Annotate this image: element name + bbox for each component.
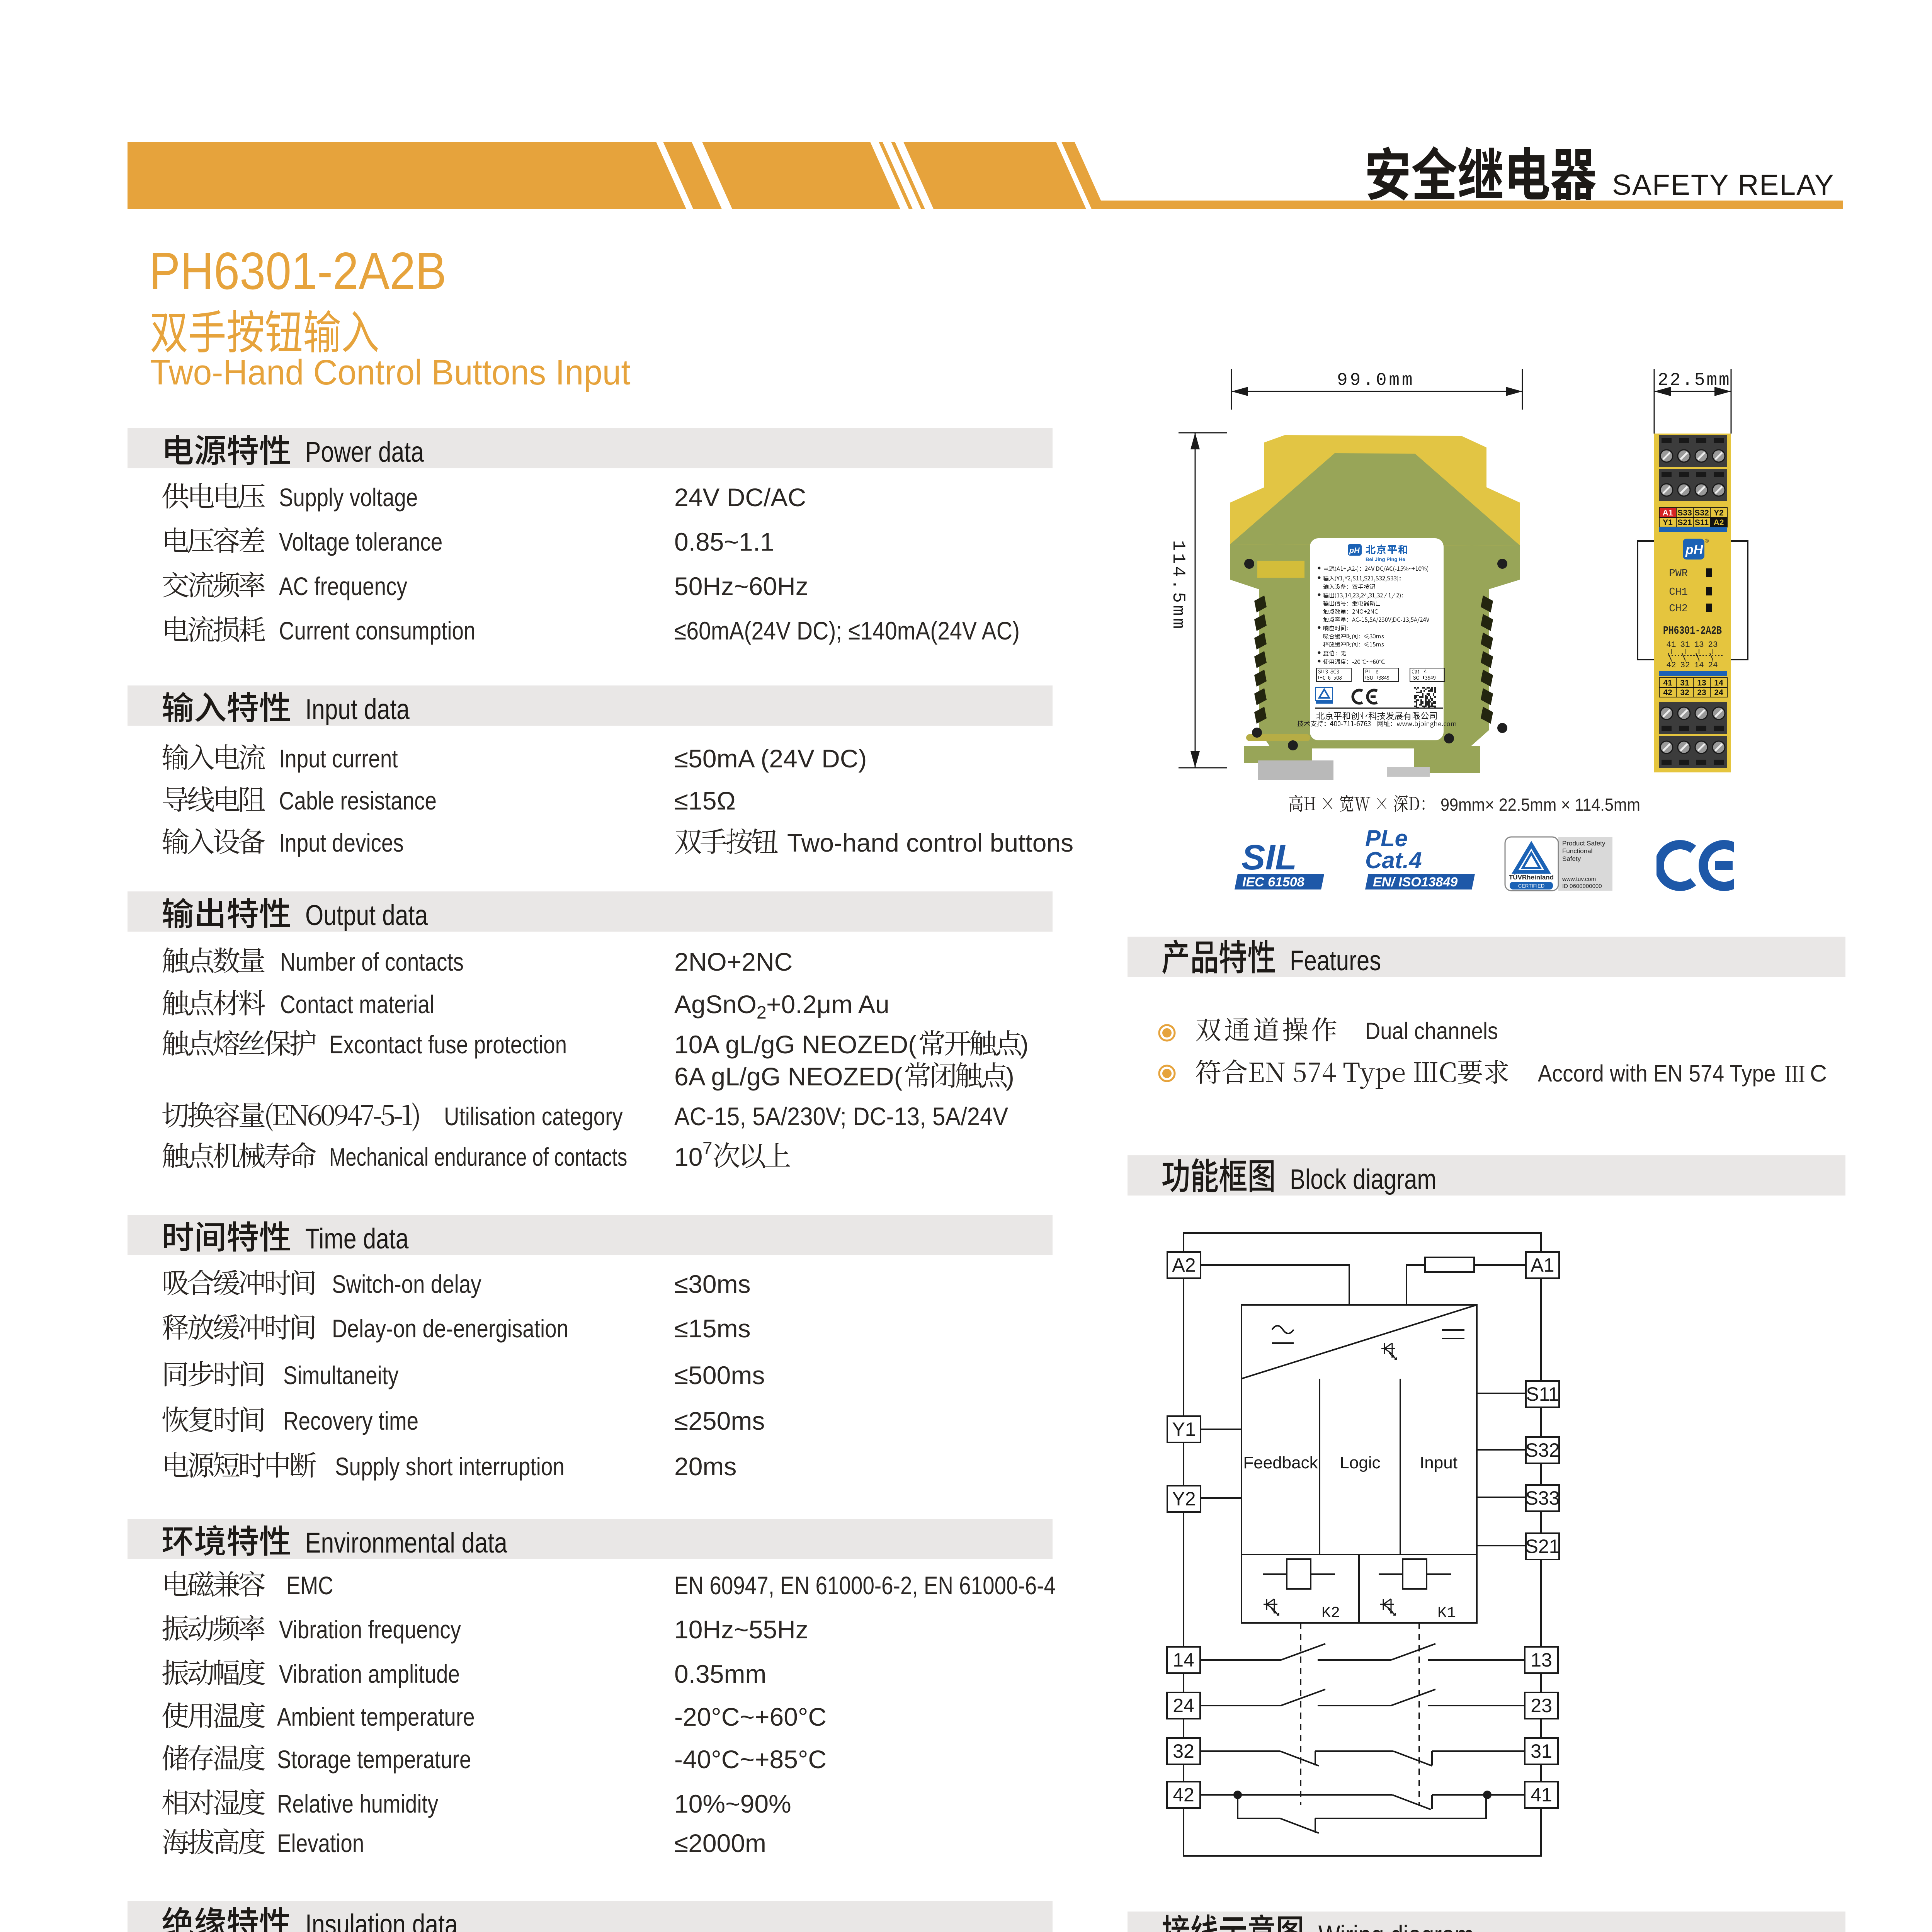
svg-text:Product Safety: Product Safety xyxy=(1562,840,1605,847)
svg-text:41: 41 xyxy=(1531,1784,1552,1806)
svg-text:CERTIFIED: CERTIFIED xyxy=(1518,883,1544,889)
svg-text:A1: A1 xyxy=(1663,509,1673,517)
svg-text:23: 23 xyxy=(1531,1695,1552,1716)
svg-text:S33: S33 xyxy=(1677,509,1692,517)
svg-text:CH2: CH2 xyxy=(1669,603,1688,615)
svg-text:Cat.4: Cat.4 xyxy=(1365,847,1422,873)
svg-text:31: 31 xyxy=(1680,679,1689,687)
svg-text:A2: A2 xyxy=(1172,1254,1196,1276)
svg-text:Y1: Y1 xyxy=(1172,1418,1196,1440)
svg-text:K1: K1 xyxy=(1437,1605,1456,1622)
svg-text:Input: Input xyxy=(1420,1453,1458,1472)
svg-text:S32: S32 xyxy=(1526,1439,1560,1461)
svg-text:14: 14 xyxy=(1714,679,1723,687)
svg-text:PH6301-2A2B: PH6301-2A2B xyxy=(1663,624,1722,637)
svg-text:Feedback: Feedback xyxy=(1243,1453,1318,1472)
svg-text:32: 32 xyxy=(1680,688,1689,697)
svg-text:24: 24 xyxy=(1708,661,1718,670)
svg-text:S32: S32 xyxy=(1694,509,1709,517)
svg-text:ID 0600000000: ID 0600000000 xyxy=(1562,883,1602,889)
svg-text:23: 23 xyxy=(1697,688,1706,697)
svg-text:®: ® xyxy=(1705,537,1709,544)
svg-text:Safety: Safety xyxy=(1562,855,1581,862)
svg-text:Y2: Y2 xyxy=(1172,1488,1196,1510)
svg-text:32: 32 xyxy=(1173,1740,1194,1762)
svg-text:13: 13 xyxy=(1694,641,1704,650)
svg-text:Y2: Y2 xyxy=(1714,509,1724,517)
svg-text:pH: pH xyxy=(1685,543,1704,557)
svg-text:14: 14 xyxy=(1173,1649,1194,1671)
svg-text:S33: S33 xyxy=(1526,1487,1560,1509)
svg-text:42: 42 xyxy=(1666,661,1676,670)
svg-text:K2: K2 xyxy=(1321,1605,1340,1622)
svg-text:24: 24 xyxy=(1173,1695,1194,1716)
svg-text:Logic: Logic xyxy=(1340,1453,1380,1472)
svg-text:42: 42 xyxy=(1173,1784,1194,1806)
svg-text:S11: S11 xyxy=(1695,518,1709,527)
svg-text:EN/ ISO13849: EN/ ISO13849 xyxy=(1373,875,1458,889)
svg-text:42: 42 xyxy=(1663,688,1672,697)
svg-text:PWR: PWR xyxy=(1669,568,1688,580)
svg-text:S21: S21 xyxy=(1677,518,1692,527)
svg-text:14: 14 xyxy=(1694,661,1704,670)
svg-text:A2: A2 xyxy=(1714,518,1724,527)
svg-text:TÜVRheinland: TÜVRheinland xyxy=(1509,874,1554,881)
svg-text:A1: A1 xyxy=(1531,1254,1554,1276)
svg-text:www.tuv.com: www.tuv.com xyxy=(1562,876,1596,883)
svg-text:Functional: Functional xyxy=(1562,847,1592,855)
svg-text:Y1: Y1 xyxy=(1663,518,1673,527)
svg-text:S11: S11 xyxy=(1526,1383,1559,1405)
svg-text:41: 41 xyxy=(1666,641,1676,650)
svg-text:S21: S21 xyxy=(1526,1536,1560,1557)
svg-text:24: 24 xyxy=(1714,688,1723,697)
svg-text:CH1: CH1 xyxy=(1669,587,1688,598)
svg-text:32: 32 xyxy=(1680,661,1690,670)
svg-text:SIL: SIL xyxy=(1242,838,1297,877)
svg-text:23: 23 xyxy=(1708,641,1718,650)
svg-text:pH: pH xyxy=(1349,546,1360,555)
svg-text:IEC 61508: IEC 61508 xyxy=(1242,875,1304,889)
svg-text:41: 41 xyxy=(1663,679,1672,687)
svg-text:31: 31 xyxy=(1680,641,1690,650)
svg-text:13: 13 xyxy=(1697,679,1706,687)
svg-text:31: 31 xyxy=(1531,1740,1552,1762)
svg-text:13: 13 xyxy=(1531,1649,1552,1671)
